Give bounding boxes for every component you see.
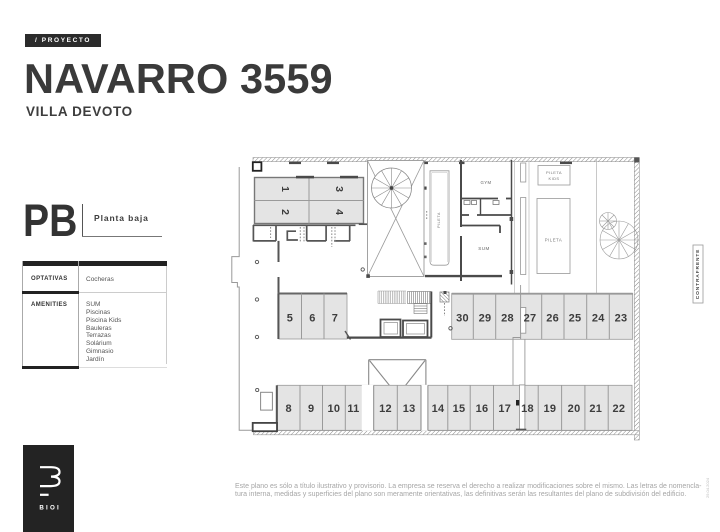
svg-text:7: 7 (332, 313, 338, 325)
svg-text:16: 16 (476, 403, 489, 415)
svg-text:SUM: SUM (478, 246, 489, 251)
svg-text:25: 25 (569, 313, 582, 325)
svg-text:KIDS: KIDS (549, 176, 560, 181)
svg-text:28: 28 (501, 313, 514, 325)
svg-text:CONTRAFRENTE: CONTRAFRENTE (695, 249, 701, 300)
svg-text:19: 19 (543, 403, 556, 415)
svg-text:30: 30 (456, 313, 469, 325)
svg-text:24: 24 (592, 313, 605, 325)
svg-text:17: 17 (498, 403, 511, 415)
svg-text:PILETA: PILETA (437, 212, 441, 228)
svg-text:4: 4 (333, 209, 345, 215)
svg-text:GYM: GYM (481, 180, 492, 185)
svg-text:13: 13 (403, 403, 416, 415)
svg-text:21: 21 (589, 403, 602, 415)
svg-text:29: 29 (479, 313, 492, 325)
svg-text:5: 5 (287, 313, 293, 325)
svg-text:22: 22 (612, 403, 625, 415)
svg-text:3: 3 (333, 186, 345, 192)
svg-text:23: 23 (615, 313, 628, 325)
svg-text:PILETA: PILETA (545, 238, 563, 243)
svg-text:6: 6 (309, 313, 315, 325)
svg-text:PILETA: PILETA (546, 170, 562, 175)
svg-text:11: 11 (347, 403, 359, 415)
svg-text:1: 1 (279, 186, 291, 192)
svg-text:20: 20 (568, 403, 581, 415)
svg-text:15: 15 (453, 403, 466, 415)
svg-text:9: 9 (308, 403, 314, 415)
svg-text:26: 26 (546, 313, 559, 325)
svg-text:12: 12 (379, 403, 392, 415)
svg-text:14: 14 (432, 403, 445, 415)
svg-text:18: 18 (521, 403, 534, 415)
svg-text:8: 8 (285, 403, 291, 415)
svg-text:10: 10 (327, 403, 340, 415)
svg-text:2: 2 (279, 209, 291, 215)
svg-text:27: 27 (524, 313, 537, 325)
